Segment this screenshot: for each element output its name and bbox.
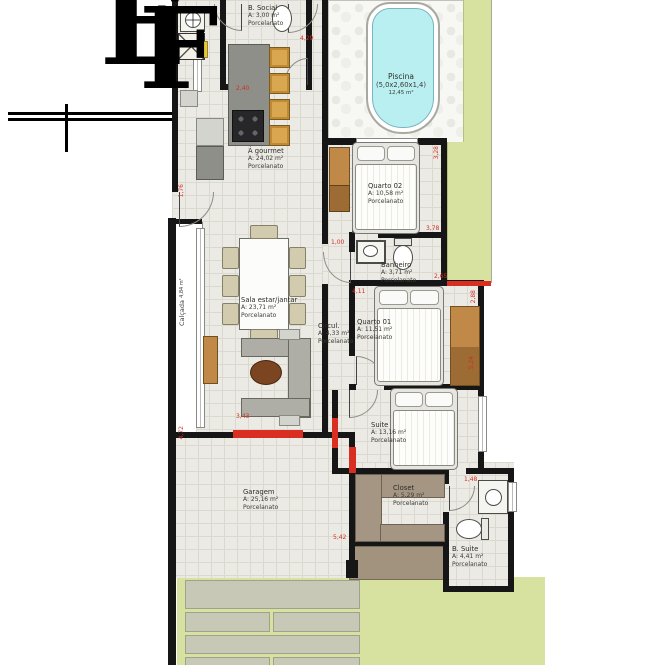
side-table — [279, 415, 300, 426]
chair — [289, 247, 306, 269]
wall — [441, 138, 447, 286]
walkway — [349, 546, 445, 580]
room-label-circul: Circul. A: 4,33 m² Porcelanato — [318, 322, 353, 345]
wall — [322, 138, 356, 145]
dimension: 5,24 — [469, 356, 475, 369]
driveway-strip — [185, 635, 360, 654]
piscina-dims: (5,0x2,60x1,4) — [361, 81, 441, 89]
dimension: 1,00 — [331, 240, 344, 246]
name: Suite — [371, 421, 406, 429]
chair — [289, 275, 306, 297]
room-label-bsuite: B. Suite A: 4,41 m² Porcelanato — [452, 545, 487, 568]
closet-wardrobe-left — [355, 474, 382, 542]
sink-bowl-icon — [363, 245, 378, 257]
closet-wardrobe-bottom — [380, 524, 445, 542]
name: Quarto 02 — [368, 182, 403, 190]
dimension: 1,76 — [179, 184, 185, 197]
area: A: 13,16 m² — [371, 429, 406, 437]
pillow — [357, 146, 385, 161]
area: A: 25,16 m² — [243, 496, 278, 504]
driveway-strip — [273, 612, 360, 632]
name: Banheiro — [381, 261, 416, 269]
logo-letter-f: F — [139, 0, 219, 106]
bsuite-sink — [478, 480, 508, 514]
post — [346, 560, 358, 578]
window-bsuite — [508, 482, 517, 512]
wardrobe-quarto02-low — [329, 185, 350, 212]
lawn-right-top — [463, 0, 492, 142]
floor: Porcelanato — [248, 163, 284, 171]
driveway-strip — [185, 612, 270, 632]
floor: Porcelanato — [368, 198, 403, 206]
area: A: 3,00 m² — [248, 12, 283, 20]
floor: Porcelanato — [248, 20, 283, 28]
area: A: 24,02 m² — [248, 155, 284, 163]
floor: Porcelanato — [371, 437, 406, 445]
wall — [168, 218, 176, 665]
name: Circul. — [318, 322, 353, 330]
piscina-name: Piscina — [361, 72, 441, 81]
stool — [269, 125, 290, 146]
floor: Porcelanato — [452, 561, 487, 569]
area: A: 10,58 m² — [368, 190, 403, 198]
fridge — [196, 146, 224, 180]
sink-bowl-icon — [485, 489, 502, 506]
pillow — [395, 392, 423, 407]
room-label-quarto01: Quarto 01 A: 11,51 m² Porcelanato — [357, 318, 392, 341]
area: A: 11,51 m² — [357, 326, 392, 334]
calcada-name: Calçada — [178, 300, 186, 326]
wall — [416, 138, 447, 145]
chair — [222, 247, 239, 269]
area: A: 4,41 m² — [452, 553, 487, 561]
window-suite — [478, 396, 487, 452]
name: Quarto 01 — [357, 318, 392, 326]
room-label-sala: Sala estar/jantar A: 23,71 m² Porcelanat… — [241, 296, 297, 319]
kitchen-counter — [196, 118, 224, 146]
logo-line — [65, 104, 68, 152]
name: Sala estar/jantar — [241, 296, 297, 304]
driveway-strip — [185, 580, 360, 609]
dimension: 5,42 — [333, 535, 346, 541]
glass-door-marker — [233, 430, 303, 438]
lot-line — [491, 0, 492, 283]
wall — [349, 232, 355, 252]
stool — [269, 47, 290, 68]
calcada-area: 4,84 m² — [179, 278, 185, 298]
chair — [222, 275, 239, 297]
wall — [322, 0, 328, 244]
wall — [443, 586, 514, 592]
room-label-banheiro: Banheiro A: 3,71 m² Porcelanato — [381, 261, 416, 284]
gate-marker — [447, 281, 491, 286]
pillow — [379, 290, 408, 305]
name: Á gourmet — [248, 147, 284, 155]
area: A: 5,29 m² — [393, 492, 428, 500]
floor: Porcelanato — [243, 504, 278, 512]
dimension: 3,43 — [236, 414, 249, 420]
floor-plan: Calçada 4,84 m² Piscina (5,0x2,60x1,4) 1… — [0, 0, 665, 665]
floor: Porcelanato — [393, 500, 428, 508]
dimension: 2,88 — [471, 290, 477, 303]
side-table — [279, 329, 300, 340]
wall — [322, 284, 328, 438]
room-label-quarto02: Quarto 02 A: 10,58 m² Porcelanato — [368, 182, 403, 205]
dimension: 3,28 — [434, 146, 440, 159]
floor: Porcelanato — [357, 334, 392, 342]
room-label-bsocial: B. Social A: 3,00 m² Porcelanato — [248, 4, 283, 27]
dimension: 3,78 — [426, 226, 439, 232]
cooktop — [232, 110, 264, 142]
name: Garagem — [243, 488, 278, 496]
driveway-strip — [273, 657, 360, 665]
pillow — [387, 146, 415, 161]
area: A: 3,71 m² — [381, 269, 416, 277]
room-label-closet: Closet A: 5,29 m² Porcelanato — [393, 484, 428, 507]
driveway-strip — [185, 657, 270, 665]
pillow — [425, 392, 453, 407]
pool-water — [372, 8, 434, 128]
stool — [269, 99, 290, 120]
dimension: 4,29 — [300, 36, 313, 42]
room-label-garagem: Garagem A: 25,16 m² Porcelanato — [243, 488, 278, 511]
dimension: 1,48 — [464, 477, 477, 483]
toilet — [456, 519, 482, 539]
piscina-area: 12,45 m² — [361, 90, 441, 97]
room-label-piscina: Piscina (5,0x2,60x1,4) 12,45 m² — [361, 72, 441, 97]
dimension: 2,65 — [434, 274, 447, 280]
pillow — [410, 290, 439, 305]
window-sliding-sala — [196, 228, 205, 428]
toilet-tank — [481, 518, 489, 540]
area: A: 4,33 m² — [318, 330, 353, 338]
glass-door-marker — [332, 418, 338, 448]
floor: Porcelanato — [241, 312, 297, 320]
pool — [366, 2, 440, 134]
dimension: 2,40 — [236, 86, 249, 92]
wardrobe-quarto01 — [450, 306, 480, 386]
wardrobe-quarto02 — [329, 147, 350, 187]
area: A: 23,71 m² — [241, 304, 297, 312]
chair — [250, 225, 278, 239]
dimension: 4,72 — [179, 426, 185, 439]
name: B. Suite — [452, 545, 487, 553]
logo-line — [8, 112, 172, 115]
name: B. Social — [248, 4, 283, 12]
sideboard — [203, 336, 218, 384]
glass-door-marker — [349, 447, 356, 473]
wall — [466, 468, 514, 474]
coffee-table — [250, 360, 282, 385]
floor: Porcelanato — [318, 338, 353, 346]
name: Closet — [393, 484, 428, 492]
room-label-gourmet: Á gourmet A: 24,02 m² Porcelanato — [248, 147, 284, 170]
dimension: 4,11 — [352, 289, 365, 295]
stool — [269, 73, 290, 94]
room-label-suite: Suite A: 13,16 m² Porcelanato — [371, 421, 406, 444]
chair — [222, 303, 239, 325]
lawn-right-mid — [447, 142, 492, 283]
logo-line — [8, 118, 172, 121]
floor: Porcelanato — [381, 277, 416, 285]
